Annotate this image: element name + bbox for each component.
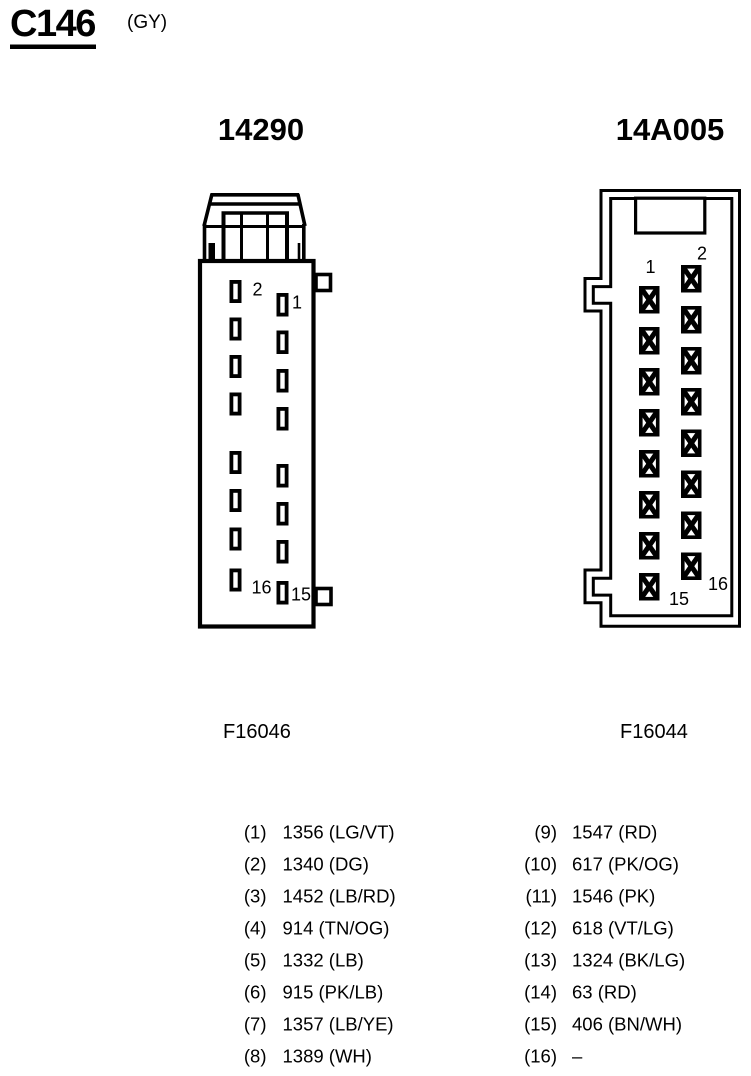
svg-text:(3): (3) (244, 886, 267, 907)
svg-text:15: 15 (669, 589, 689, 609)
svg-text:–: – (572, 1046, 583, 1067)
svg-text:914 (TN/OG): 914 (TN/OG) (283, 918, 390, 939)
svg-text:915 (PK/LB): 915 (PK/LB) (283, 982, 384, 1003)
svg-text:(9): (9) (534, 822, 557, 843)
svg-text:1546 (PK): 1546 (PK) (572, 886, 655, 907)
svg-text:2: 2 (697, 244, 707, 264)
svg-text:(4): (4) (244, 918, 267, 939)
svg-text:(1): (1) (244, 822, 267, 843)
svg-text:1452 (LB/RD): 1452 (LB/RD) (283, 886, 396, 907)
svg-text:F16044: F16044 (620, 721, 688, 743)
svg-text:1356 (LG/VT): 1356 (LG/VT) (283, 822, 395, 843)
svg-text:(16): (16) (524, 1046, 557, 1067)
svg-text:1340 (DG): 1340 (DG) (283, 854, 369, 875)
svg-text:1324 (BK/LG): 1324 (BK/LG) (572, 950, 685, 971)
svg-text:(14): (14) (524, 982, 557, 1003)
svg-text:1332 (LB): 1332 (LB) (283, 950, 364, 971)
svg-text:(12): (12) (524, 918, 557, 939)
svg-text:406 (BN/WH): 406 (BN/WH) (572, 1014, 682, 1035)
svg-text:618 (VT/LG): 618 (VT/LG) (572, 918, 674, 939)
svg-text:14A005: 14A005 (616, 112, 725, 147)
svg-text:(GY): (GY) (127, 12, 167, 33)
svg-text:617 (PK/OG): 617 (PK/OG) (572, 854, 679, 875)
svg-text:F16046: F16046 (223, 721, 291, 743)
svg-text:(13): (13) (524, 950, 557, 971)
svg-text:(2): (2) (244, 854, 267, 875)
svg-text:(8): (8) (244, 1046, 267, 1067)
svg-text:1357 (LB/YE): 1357 (LB/YE) (283, 1014, 394, 1035)
svg-text:1389 (WH): 1389 (WH) (283, 1046, 372, 1067)
svg-text:(7): (7) (244, 1014, 267, 1035)
svg-text:(15): (15) (524, 1014, 557, 1035)
svg-text:(10): (10) (524, 854, 557, 875)
svg-text:1: 1 (292, 293, 302, 313)
svg-text:15: 15 (291, 585, 311, 605)
svg-text:2: 2 (252, 280, 262, 300)
svg-text:C146: C146 (10, 3, 95, 45)
svg-text:63 (RD): 63 (RD) (572, 982, 637, 1003)
svg-text:(6): (6) (244, 982, 267, 1003)
svg-text:16: 16 (708, 574, 728, 594)
svg-text:14290: 14290 (218, 112, 304, 147)
svg-text:16: 16 (251, 578, 271, 598)
svg-text:1547 (RD): 1547 (RD) (572, 822, 657, 843)
svg-text:1: 1 (645, 257, 655, 277)
svg-text:(5): (5) (244, 950, 267, 971)
svg-text:(11): (11) (525, 886, 557, 907)
